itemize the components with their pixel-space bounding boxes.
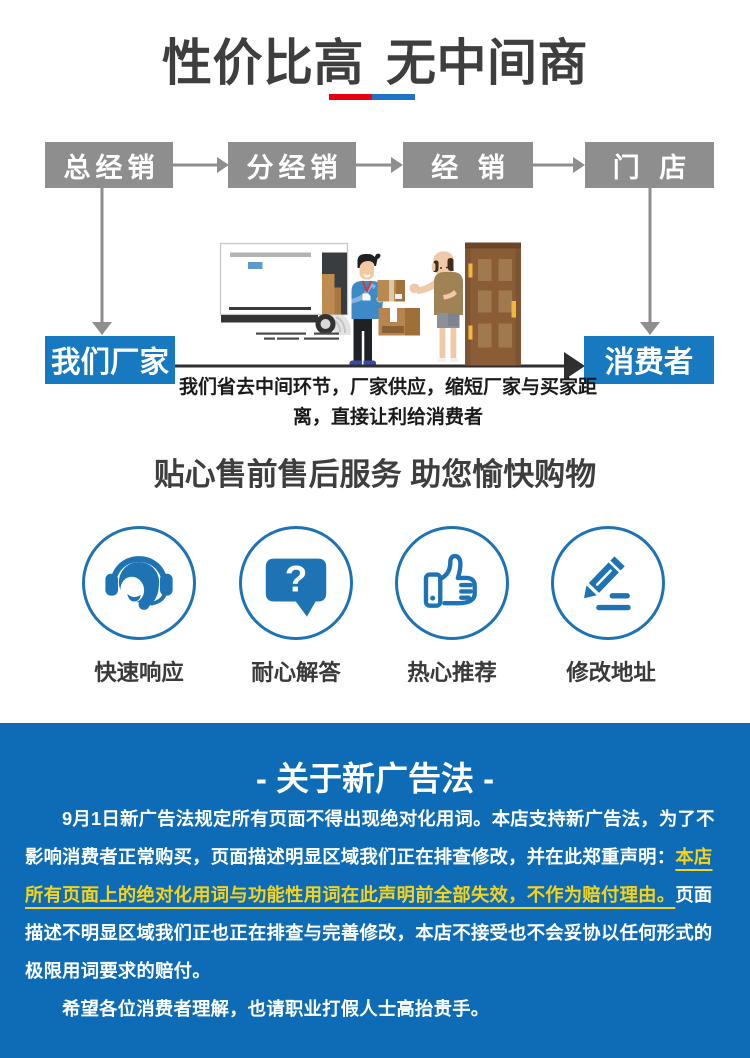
- svg-text:?: ?: [285, 558, 308, 599]
